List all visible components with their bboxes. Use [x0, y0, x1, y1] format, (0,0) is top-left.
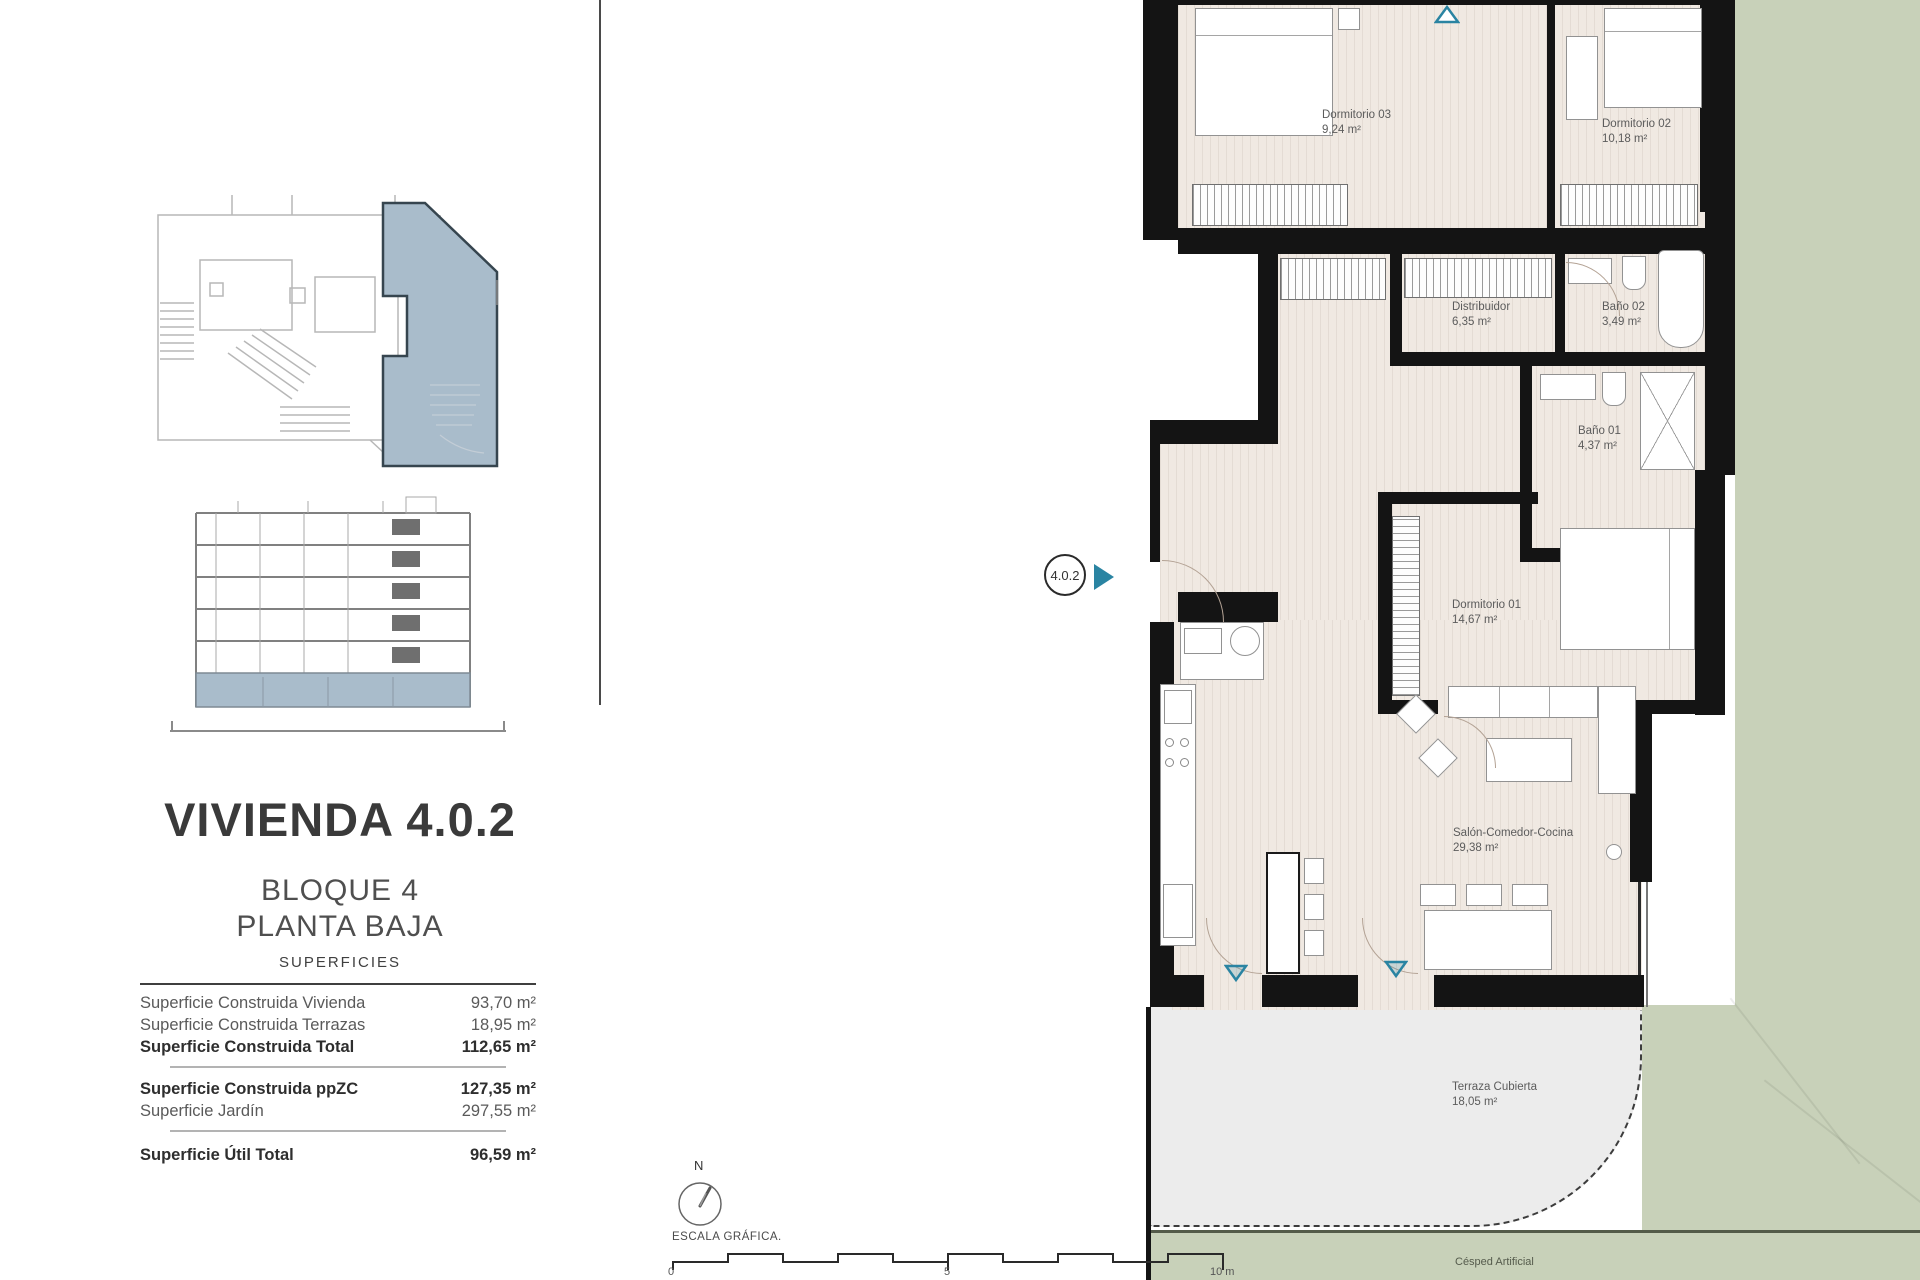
- room-label-bano-01: Baño 01 4,37 m²: [1578, 424, 1621, 454]
- scale-tick-label: 10 m: [1210, 1266, 1234, 1278]
- room-name: Terraza Cubierta: [1452, 1080, 1537, 1095]
- wall-segment: [1143, 0, 1178, 240]
- wall-segment: [1392, 492, 1538, 504]
- row-value: 18,95 m²: [471, 1014, 536, 1036]
- wall-segment: [1434, 975, 1644, 1007]
- dresser-drawing: [1566, 36, 1598, 120]
- floor-label: PLANTA BAJA: [110, 910, 570, 944]
- garden-label: Césped Artificial: [1455, 1256, 1534, 1268]
- toilet-drawing: [1602, 372, 1626, 406]
- chair-drawing: [1466, 884, 1502, 906]
- row-label: Superficie Construida Total: [140, 1036, 354, 1058]
- room-area: 10,18 m²: [1602, 132, 1671, 147]
- shower-drawing: [1640, 372, 1695, 470]
- terrace-door-marker-icon: [1224, 964, 1248, 982]
- stool-drawing: [1304, 858, 1324, 884]
- stove-drawing: [1162, 732, 1194, 792]
- room-name: Distribuidor: [1452, 300, 1510, 315]
- panel-divider-line: [599, 0, 601, 705]
- wall-segment: [1390, 254, 1402, 354]
- wall-segment: [1705, 205, 1735, 475]
- bed-drawing: [1604, 8, 1702, 108]
- table-row: Superficie Útil Total 96,59 m²: [140, 1144, 536, 1166]
- bed-drawing: [1195, 8, 1333, 136]
- row-label: Superficie Construida ppZC: [140, 1078, 358, 1100]
- table-mid-rule: [170, 1130, 506, 1132]
- room-label-dormitorio-03: Dormitorio 03 9,24 m²: [1322, 108, 1391, 138]
- building-section-drawing: [168, 495, 508, 745]
- table-row: Superficie Construida Vivienda 93,70 m²: [140, 992, 536, 1014]
- wall-segment: [1150, 444, 1160, 562]
- row-value: 112,65 m²: [462, 1036, 536, 1058]
- room-area: 18,05 m²: [1452, 1095, 1537, 1110]
- room-label-dormitorio-02: Dormitorio 02 10,18 m²: [1602, 117, 1671, 147]
- room-label-terraza-cubierta: Terraza Cubierta 18,05 m²: [1452, 1080, 1537, 1110]
- row-value: 93,70 m²: [471, 992, 536, 1014]
- terrace-door-marker-icon: [1384, 960, 1408, 978]
- unit-marker-label: 4.0.2: [1051, 568, 1080, 583]
- row-value: 297,55 m²: [462, 1100, 536, 1122]
- stool-drawing: [1304, 894, 1324, 920]
- oven-drawing: [1230, 626, 1260, 656]
- scale-tick-label: 5: [944, 1266, 950, 1278]
- row-label: Superficie Construida Terrazas: [140, 1014, 365, 1036]
- site-key-drawing: [140, 185, 560, 500]
- scale-title: ESCALA GRÁFICA.: [672, 1231, 782, 1243]
- wall-segment: [1262, 975, 1358, 1007]
- wall-segment: [1174, 975, 1204, 1007]
- block-label: BLOQUE 4: [110, 874, 570, 908]
- entrance-arrow-icon: [1094, 564, 1114, 590]
- garden-area: [1150, 1230, 1920, 1280]
- garden-area: [1735, 0, 1920, 1010]
- toilet-drawing: [1622, 256, 1646, 290]
- surfaces-table: Superficie Construida Vivienda 93,70 m² …: [140, 992, 536, 1166]
- room-label-salon-comedor-cocina: Salón-Comedor-Cocina 29,38 m²: [1453, 826, 1573, 856]
- exterior-white-patch: [1160, 254, 1258, 420]
- microwave-drawing: [1184, 628, 1222, 654]
- table-row: Superficie Construida Terrazas 18,95 m²: [140, 1014, 536, 1036]
- scale-tick-label: 0: [668, 1266, 674, 1278]
- table-top-rule: [140, 983, 536, 985]
- wall-segment: [1555, 254, 1565, 352]
- table-row: Superficie Jardín 297,55 m²: [140, 1100, 536, 1122]
- wall-segment: [1258, 254, 1278, 422]
- room-area: 14,67 m²: [1452, 613, 1521, 628]
- wall-segment: [1695, 470, 1725, 715]
- floorplan-document: VIVIENDA 4.0.2 BLOQUE 4 PLANTA BAJA SUPE…: [0, 0, 1920, 1280]
- unit-highlight-shape: [383, 203, 497, 466]
- table-row: Superficie Construida Total 112,65 m²: [140, 1036, 536, 1058]
- vent-marker-icon: [1434, 5, 1460, 24]
- sofa-drawing: [1448, 686, 1598, 718]
- scale-bar: [672, 1246, 1232, 1278]
- room-label-bano-02: Baño 02 3,49 m²: [1602, 300, 1645, 330]
- wall-segment: [1547, 5, 1555, 228]
- dishwasher-drawing: [1163, 884, 1193, 938]
- wardrobe-drawing: [1280, 258, 1386, 300]
- section-ground-floor-band: [196, 673, 470, 707]
- room-name: Baño 01: [1578, 424, 1621, 439]
- wall-segment: [1700, 0, 1735, 212]
- row-label: Superficie Jardín: [140, 1100, 264, 1122]
- side-table-drawing: [1606, 844, 1622, 860]
- wall-segment: [1146, 1007, 1151, 1280]
- wall-segment: [1378, 492, 1392, 707]
- terrace-area: [1150, 1005, 1642, 1227]
- north-label: N: [694, 1158, 703, 1173]
- room-area: 29,38 m²: [1453, 841, 1573, 856]
- page-title: VIVIENDA 4.0.2: [110, 792, 570, 847]
- row-value: 96,59 m²: [470, 1144, 536, 1166]
- window-line: [1646, 882, 1648, 1007]
- unit-marker: 4.0.2: [1044, 554, 1086, 596]
- nightstand-drawing: [1338, 8, 1360, 30]
- room-label-distribuidor: Distribuidor 6,35 m²: [1452, 300, 1510, 330]
- room-name: Baño 02: [1602, 300, 1645, 315]
- room-area: 3,49 m²: [1602, 315, 1645, 330]
- wall-segment: [1150, 420, 1278, 444]
- kitchen-sink-drawing: [1164, 690, 1192, 724]
- wall-segment: [1390, 352, 1715, 366]
- surfaces-header: SUPERFICIES: [110, 954, 570, 971]
- wardrobe-drawing: [1192, 184, 1348, 226]
- room-label-dormitorio-01: Dormitorio 01 14,67 m²: [1452, 598, 1521, 628]
- room-name: Dormitorio 02: [1602, 117, 1671, 132]
- wall-segment: [1178, 228, 1705, 254]
- wardrobe-drawing: [1560, 184, 1698, 226]
- table-mid-rule: [170, 1066, 506, 1068]
- coffee-table-drawing: [1486, 738, 1572, 782]
- sofa-drawing: [1598, 686, 1636, 794]
- table-row: Superficie Construida ppZC 127,35 m²: [140, 1078, 536, 1100]
- dining-table-drawing: [1424, 910, 1552, 970]
- north-compass-icon: [676, 1180, 724, 1228]
- row-value: 127,35 m²: [461, 1078, 536, 1100]
- chair-drawing: [1420, 884, 1456, 906]
- bed-drawing: [1560, 528, 1695, 650]
- chair-drawing: [1512, 884, 1548, 906]
- stool-drawing: [1304, 930, 1324, 956]
- room-name: Dormitorio 01: [1452, 598, 1521, 613]
- room-name: Salón-Comedor-Cocina: [1453, 826, 1573, 841]
- room-name: Dormitorio 03: [1322, 108, 1391, 123]
- room-area: 6,35 m²: [1452, 315, 1510, 330]
- room-area: 9,24 m²: [1322, 123, 1391, 138]
- row-label: Superficie Construida Vivienda: [140, 992, 365, 1014]
- room-area: 4,37 m²: [1578, 439, 1621, 454]
- kitchen-island: [1266, 852, 1300, 974]
- bathtub-drawing: [1658, 250, 1704, 348]
- sink-drawing: [1540, 374, 1596, 400]
- row-label: Superficie Útil Total: [140, 1144, 294, 1166]
- wardrobe-drawing: [1404, 258, 1552, 298]
- wall-segment: [1520, 366, 1532, 556]
- wardrobe-drawing: [1392, 516, 1420, 696]
